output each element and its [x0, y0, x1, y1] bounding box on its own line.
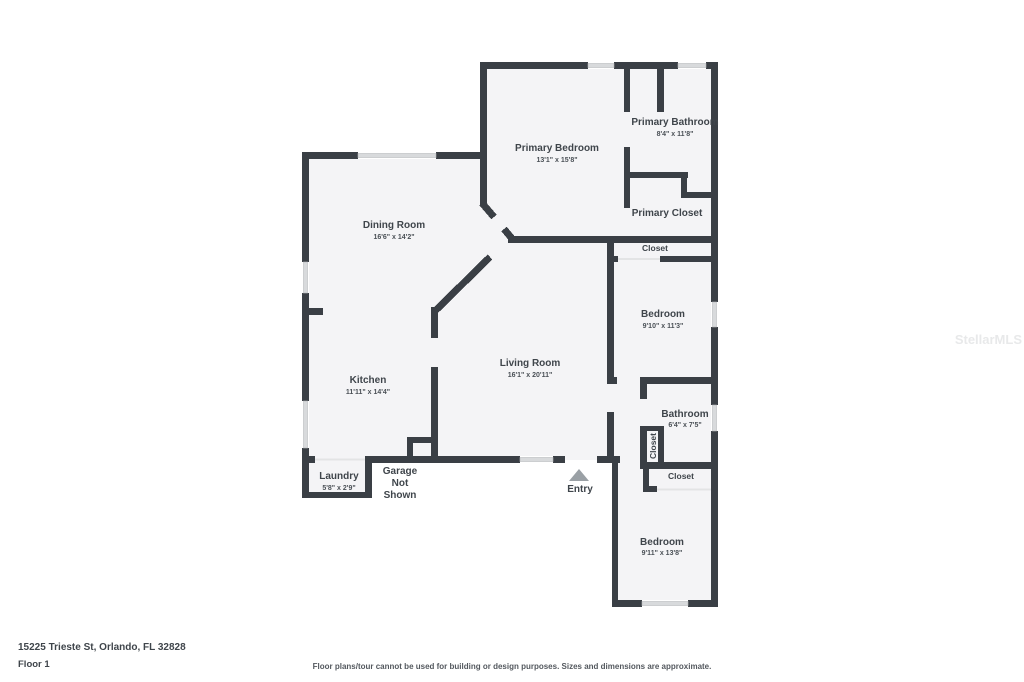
bedroom3-closet-door-line [657, 489, 712, 491]
label-garage-line1: Garage [383, 466, 418, 477]
stellar-mls-watermark: StellarMLS [955, 332, 1023, 347]
entry-marker-icon [569, 469, 589, 481]
dims-living-room: 16'1" x 20'11" [508, 372, 553, 379]
label-hall-closet: Closet [642, 243, 668, 253]
address-text: 15225 Trieste St, Orlando, FL 32828 [18, 642, 186, 653]
label-garage-line3: Shown [384, 490, 417, 501]
bedroom3-fill [616, 460, 713, 602]
dims-bathroom: 6'4" x 7'5" [668, 422, 701, 429]
label-primary-closet: Primary Closet [632, 208, 703, 219]
window-bedroom3 [642, 602, 688, 606]
dims-kitchen: 11'11" x 14'4" [346, 389, 390, 396]
label-bath-closet: Closet [648, 433, 658, 459]
window-left-lower [304, 401, 308, 448]
disclaimer-text: Floor plans/tour cannot be used for buil… [313, 662, 712, 671]
window-bedroom2 [713, 302, 717, 327]
dims-bedroom2: 9'10" x 11'3" [643, 323, 684, 330]
floor-plan-canvas: Primary Bedroom 13'1" x 15'8" Primary Ba… [0, 0, 1024, 682]
label-bathroom: Bathroom [661, 409, 708, 420]
label-entry: Entry [567, 484, 593, 495]
label-kitchen: Kitchen [350, 375, 387, 386]
window-bathroom [713, 405, 717, 431]
footer: 15225 Trieste St, Orlando, FL 32828 Floo… [18, 642, 711, 671]
dims-laundry: 5'8" x 2'9" [322, 485, 355, 492]
label-bedroom3: Bedroom [640, 537, 684, 548]
label-dining-room: Dining Room [363, 220, 425, 231]
label-garage-line2: Not [392, 478, 409, 489]
dims-primary-bathroom: 8'4" x 11'8" [657, 131, 694, 138]
hall-closet-door-line [618, 258, 660, 260]
label-bedroom2: Bedroom [641, 309, 685, 320]
label-living-room: Living Room [500, 358, 561, 369]
dims-bedroom3: 9'11" x 13'8" [642, 550, 683, 557]
laundry-door-line [315, 459, 365, 461]
label-primary-bedroom: Primary Bedroom [515, 143, 599, 154]
window-living [520, 458, 553, 462]
label-primary-bathroom: Primary Bathroom [631, 117, 718, 128]
room-fills [305, 65, 713, 602]
window-left-upper [304, 262, 308, 293]
window-dining [358, 154, 436, 158]
window-primary-bedroom [588, 64, 614, 68]
floor-label: Floor 1 [18, 659, 50, 670]
label-bedroom3-closet: Closet [668, 471, 694, 481]
dims-primary-bedroom: 13'1" x 15'8" [536, 157, 577, 164]
window-primary-bathroom [678, 64, 706, 68]
floor-plan-page: Primary Bedroom 13'1" x 15'8" Primary Ba… [0, 0, 1024, 682]
label-laundry: Laundry [319, 471, 359, 482]
dims-dining-room: 16'6" x 14'2" [373, 234, 414, 241]
